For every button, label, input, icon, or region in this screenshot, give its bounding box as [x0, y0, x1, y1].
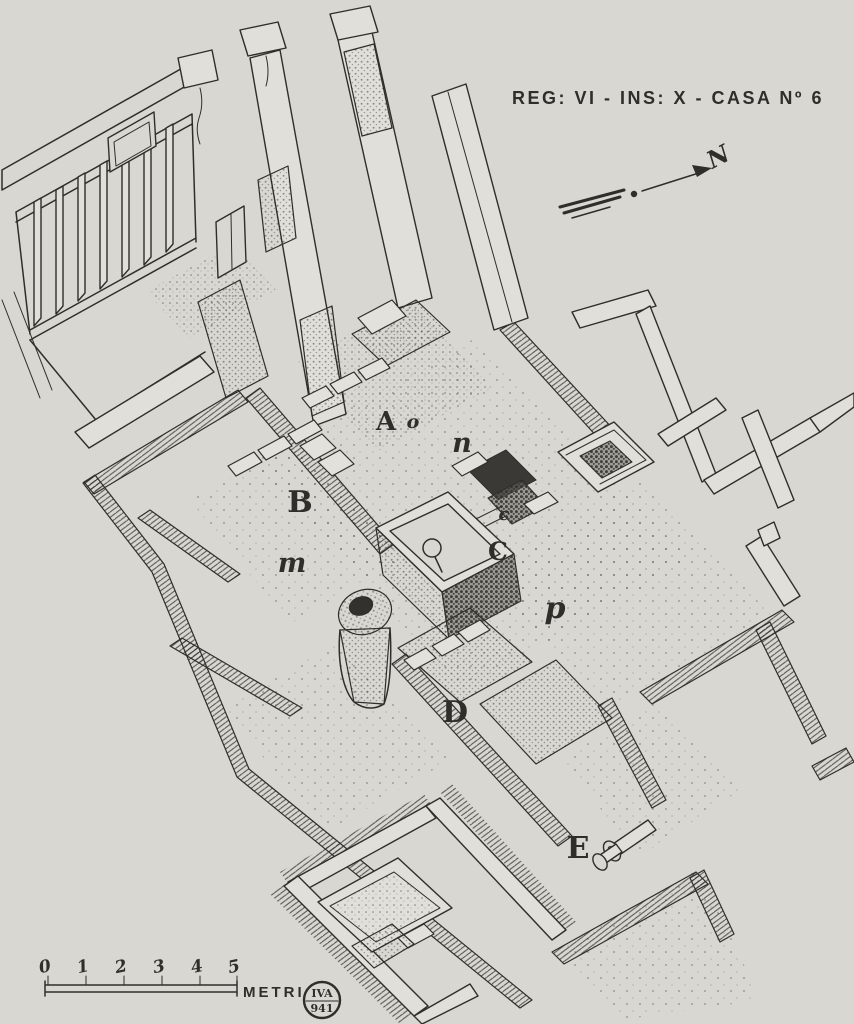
room-label-m: m — [278, 548, 307, 579]
draftsman-stamp: IVA 941 — [304, 982, 340, 1018]
scale-tick-4: 4 — [189, 956, 205, 978]
room-label-o: o — [407, 411, 420, 433]
room-label-E: E — [567, 831, 590, 866]
room-label-p: p — [545, 591, 566, 626]
stamp-year: 941 — [311, 1002, 334, 1015]
room-label-n: n — [452, 428, 472, 459]
scale-bar: 0 1 2 3 4 5 METRI — [37, 956, 305, 1001]
stamp-monogram: IVA — [311, 987, 333, 1000]
excavation-axonometric-drawing: REG: VI - INS: X - CASA Nº 6 N A o n B m… — [0, 0, 854, 1024]
room-label-D: D — [442, 695, 468, 730]
room-label-C: C — [488, 537, 508, 566]
standing-wall-with-fence — [2, 50, 268, 448]
scale-tick-5: 5 — [226, 956, 242, 978]
drawing-title: REG: VI - INS: X - CASA Nº 6 — [512, 88, 824, 108]
scale-unit: METRI — [243, 984, 305, 1001]
scanned-drawing-page: REG: VI - INS: X - CASA Nº 6 N A o n B m… — [0, 0, 854, 1024]
scale-tick-0: 0 — [37, 956, 53, 978]
scale-tick-1: 1 — [75, 956, 91, 978]
scale-tick-3: 3 — [151, 956, 167, 978]
north-arrow-icon: N — [560, 138, 735, 218]
scale-tick-2: 2 — [112, 956, 129, 978]
room-label-B: B — [287, 485, 312, 520]
room-label-A: A — [375, 407, 397, 437]
room-label-c: c — [499, 504, 510, 525]
